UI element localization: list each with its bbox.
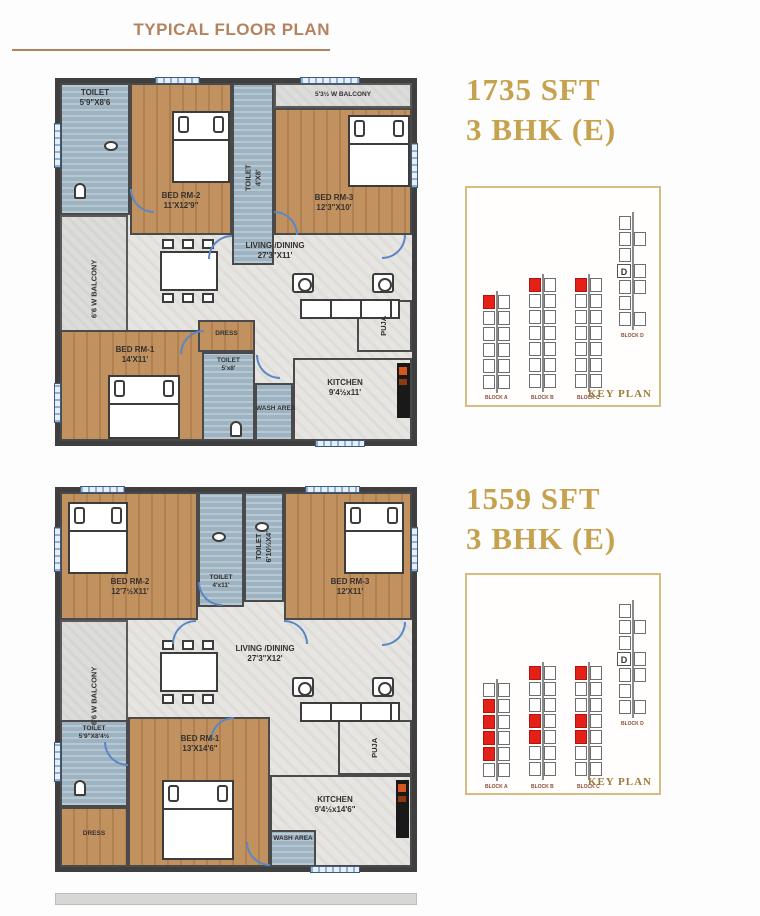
- room-toilet-1-label: TOILET5'9"X8'6: [64, 88, 126, 109]
- keyplan-unit: [590, 278, 602, 292]
- keyplan-unit: [634, 652, 646, 666]
- window-marker: [54, 527, 61, 572]
- key-plan-2: BLOCK A BLOCK B BLOCK C D BLOCK D KEY PL…: [465, 573, 661, 795]
- keyplan-unit: [498, 731, 510, 745]
- window-marker: [54, 383, 61, 423]
- keyplan-unit: [498, 327, 510, 341]
- keyplan-unit-highlighted: [483, 747, 495, 761]
- keyplan-unit: [575, 374, 587, 388]
- living-dining-label: LIVING /DINING27'3"X11': [210, 241, 340, 262]
- area-1559: 1559 SFT: [466, 479, 616, 519]
- keyplan-unit: [483, 327, 495, 341]
- keyplan-unit-highlighted: [483, 699, 495, 713]
- keyplan-unit-highlighted: [529, 278, 541, 292]
- keyplan-unit: [590, 746, 602, 760]
- key-plan-title: KEY PLAN: [588, 388, 652, 400]
- bed-icon: [162, 780, 234, 860]
- balcony-left-label: 6'6 W BALCONY: [60, 215, 128, 363]
- keyplan-unit: [634, 668, 646, 682]
- door-arc: [172, 620, 196, 644]
- keyplan-unit: [619, 312, 631, 326]
- keyplan-unit: [619, 216, 631, 230]
- keyplan-unit: [544, 698, 556, 712]
- balcony-top-label: 5'3½ W BALCONY: [280, 91, 406, 99]
- keyplan-unit: [619, 280, 631, 294]
- armchair-icon: [372, 273, 394, 293]
- keyplan-unit: [590, 682, 602, 696]
- keyplan-unit: [634, 264, 646, 278]
- unit-spec-1559: 1559 SFT 3 BHK (E): [466, 479, 616, 558]
- door-arc: [382, 235, 406, 259]
- basin-icon: [104, 141, 118, 151]
- window-marker: [300, 77, 360, 84]
- keyplan-unit: [590, 342, 602, 356]
- keyplan-unit: [619, 604, 631, 618]
- page-title: TYPICAL FLOOR PLAN: [12, 20, 330, 51]
- keyplan-unit: [498, 343, 510, 357]
- keyplan-unit: [544, 682, 556, 696]
- keyplan-unit: [575, 682, 587, 696]
- keyplan-unit: [483, 311, 495, 325]
- keyplan-unit: [483, 359, 495, 373]
- room-bed-rm-2-label: BED RM-211'X12'9": [135, 191, 227, 212]
- keyplan-unit: [498, 683, 510, 697]
- door-arc: [256, 355, 280, 379]
- keyplan-unit: [483, 683, 495, 697]
- stove-icon: [397, 363, 410, 418]
- room-toilet-vert-label: TOILET6'10½X4': [244, 507, 284, 587]
- keyplan-unit: [529, 358, 541, 372]
- armchair-icon: [292, 677, 314, 697]
- keyplan-unit: [590, 358, 602, 372]
- unit-spec-1735: 1735 SFT 3 BHK (E): [466, 70, 616, 149]
- stove-icon: [396, 780, 409, 838]
- keyplan-unit: [575, 294, 587, 308]
- keyplan-unit: [590, 698, 602, 712]
- keyplan-unit: [544, 326, 556, 340]
- keyplan-block-d: D BLOCK D: [619, 216, 646, 326]
- keyplan-unit: [544, 294, 556, 308]
- bhk-1735: 3 BHK (E): [466, 110, 616, 150]
- keyplan-block-c: BLOCK C: [575, 278, 602, 388]
- keyplan-unit: [483, 375, 495, 389]
- armchair-icon: [372, 677, 394, 697]
- page-title-text: TYPICAL FLOOR PLAN: [133, 20, 330, 39]
- keyplan-unit: [544, 342, 556, 356]
- keyplan-unit: [634, 312, 646, 326]
- keyplan-unit: [634, 280, 646, 294]
- basin-icon: [212, 532, 226, 542]
- keyplan-unit-highlighted: [529, 730, 541, 744]
- room-toilet-bl-label: TOILET5'9"X8'4½: [62, 725, 126, 742]
- keyplan-unit: [590, 730, 602, 744]
- keyplan-unit: [590, 762, 602, 776]
- keyplan-unit: [575, 762, 587, 776]
- keyplan-unit: [575, 310, 587, 324]
- keyplan-unit: [498, 699, 510, 713]
- room-toilet-mid-label: TOILET4'x11': [199, 574, 243, 591]
- keyplan-unit: [575, 342, 587, 356]
- keyplan-unit: [544, 278, 556, 292]
- bed-icon: [108, 375, 180, 439]
- keyplan-unit: [544, 714, 556, 728]
- key-plan-1: BLOCK A BLOCK B BLOCK C D BLOCK D KEY PL…: [465, 186, 661, 407]
- keyplan-unit-highlighted: [575, 730, 587, 744]
- keyplan-unit: [529, 326, 541, 340]
- keyplan-unit: [544, 310, 556, 324]
- keyplan-unit: [590, 374, 602, 388]
- keyplan-unit: [529, 762, 541, 776]
- room-bed-rm-3-label: BED RM-312'3"X10': [284, 193, 384, 214]
- keyplan-unit: [544, 746, 556, 760]
- keyplan-unit: [575, 698, 587, 712]
- room-kitchen: [270, 775, 412, 867]
- room-kitchen: [293, 358, 412, 441]
- keyplan-unit: [575, 746, 587, 760]
- room-kitchen-label: KITCHEN9'4½x11': [305, 378, 385, 399]
- window-marker: [411, 143, 418, 188]
- room-bed-rm-1-label: BED RM-114'X11': [85, 345, 185, 366]
- keyplan-unit: [619, 684, 631, 698]
- keyplan-unit: [483, 763, 495, 777]
- keyplan-unit: [529, 310, 541, 324]
- keyplan-unit-highlighted: [575, 714, 587, 728]
- window-marker: [54, 742, 61, 782]
- armchair-icon: [292, 273, 314, 293]
- room-toilet-2-label: TOILET4'X8': [232, 143, 274, 213]
- keyplan-unit: [634, 700, 646, 714]
- bed-icon: [344, 502, 404, 574]
- window-marker: [315, 440, 365, 447]
- room-bed-rm-2-label: BED RM-212'7½X11': [80, 577, 180, 598]
- keyplan-block-b: BLOCK B: [529, 666, 556, 776]
- keyplan-unit: [498, 311, 510, 325]
- room-wash-area-label: WASH AREA: [272, 835, 314, 843]
- window-marker: [310, 866, 360, 873]
- window-marker: [305, 486, 360, 493]
- bed-icon: [348, 115, 410, 187]
- keyplan-unit: [619, 248, 631, 262]
- keyplan-unit: [498, 763, 510, 777]
- area-1735: 1735 SFT: [466, 70, 616, 110]
- keyplan-unit: [619, 700, 631, 714]
- keyplan-unit: [590, 294, 602, 308]
- balcony-left-label: 6'6 W BALCONY: [60, 620, 128, 772]
- keyplan-unit: [544, 762, 556, 776]
- room-toilet-3-label: TOILET5'x8': [204, 357, 253, 374]
- room-dress-label: DRESS: [200, 330, 253, 338]
- toilet-wc-icon: [74, 183, 86, 199]
- bed-icon: [68, 502, 128, 574]
- keyplan-unit: [575, 358, 587, 372]
- keyplan-unit: [498, 359, 510, 373]
- keyplan-unit: [529, 342, 541, 356]
- room-dress-label: DRESS: [62, 830, 126, 838]
- room-wash-area-label: WASH AREA: [256, 405, 292, 413]
- toilet-wc-icon: [230, 421, 242, 437]
- keyplan-unit-highlighted: [575, 278, 587, 292]
- keyplan-unit: [590, 326, 602, 340]
- keyplan-unit: [544, 374, 556, 388]
- keyplan-block-a: BLOCK A: [483, 683, 510, 777]
- keyplan-unit: [619, 636, 631, 650]
- bed-icon: [172, 111, 230, 183]
- keyplan-unit: [619, 620, 631, 634]
- keyplan-unit: [529, 294, 541, 308]
- window-marker: [155, 77, 200, 84]
- door-arc: [382, 622, 406, 646]
- window-marker: [54, 123, 61, 168]
- sofa-icon: [300, 702, 400, 722]
- keyplan-unit: [575, 326, 587, 340]
- plinth-line: [55, 893, 417, 905]
- keyplan-unit-highlighted: [529, 666, 541, 680]
- keyplan-unit: [590, 714, 602, 728]
- window-marker: [80, 486, 125, 493]
- keyplan-block-b: BLOCK B: [529, 278, 556, 388]
- keyplan-unit-highlighted: [483, 731, 495, 745]
- keyplan-unit: [619, 232, 631, 246]
- room-kitchen-label: KITCHEN9'4½x14'6": [290, 795, 380, 816]
- keyplan-unit-highlighted: [483, 295, 495, 309]
- keyplan-unit: [529, 698, 541, 712]
- keyplan-unit: [529, 374, 541, 388]
- room-bed-rm-1-label: BED RM-113'X14'6": [150, 734, 250, 755]
- keyplan-unit: [498, 375, 510, 389]
- room-puja-label: PUJA: [357, 300, 412, 352]
- keyplan-unit-highlighted: [575, 666, 587, 680]
- keyplan-unit: [483, 343, 495, 357]
- floor-plan-1559: BED RM-212'7½X11' TOILET4'x11' TOILET6'1…: [55, 487, 417, 872]
- room-bed-rm-3-label: BED RM-312'X11': [300, 577, 400, 598]
- bhk-1559: 3 BHK (E): [466, 519, 616, 559]
- key-plan-title: KEY PLAN: [588, 776, 652, 788]
- keyplan-unit-highlighted: [483, 715, 495, 729]
- keyplan-block-c: BLOCK C: [575, 666, 602, 776]
- keyplan-unit: [619, 296, 631, 310]
- toilet-wc-icon: [74, 780, 86, 796]
- keyplan-unit: [529, 746, 541, 760]
- keyplan-unit: [498, 747, 510, 761]
- keyplan-unit: [619, 668, 631, 682]
- floor-plan-1735: TOILET5'9"X8'6 BED RM-211'X12'9" TOILET4…: [55, 78, 417, 446]
- keyplan-unit: [498, 295, 510, 309]
- living-dining-label: LIVING /DINING27'3"X12': [200, 644, 330, 665]
- keyplan-unit: [634, 620, 646, 634]
- keyplan-unit: [590, 666, 602, 680]
- door-arc: [284, 620, 308, 644]
- keyplan-unit: [544, 358, 556, 372]
- keyplan-unit-highlighted: [529, 714, 541, 728]
- keyplan-unit: [634, 232, 646, 246]
- keyplan-block-d: D BLOCK D: [619, 604, 646, 714]
- keyplan-unit: [590, 310, 602, 324]
- keyplan-unit: [544, 730, 556, 744]
- keyplan-unit: [529, 682, 541, 696]
- room-puja-label: PUJA: [338, 720, 412, 775]
- window-marker: [411, 527, 418, 572]
- keyplan-unit: [498, 715, 510, 729]
- keyplan-unit: [544, 666, 556, 680]
- keyplan-block-a: BLOCK A: [483, 295, 510, 389]
